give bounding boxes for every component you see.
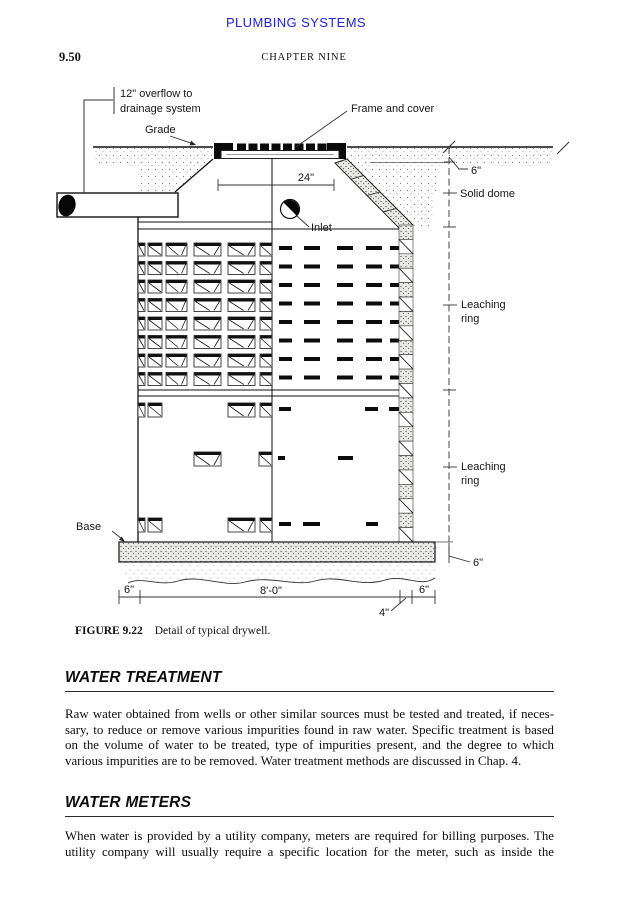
overflow-label-2: drainage system <box>120 103 201 115</box>
water-meters-paragraph: When water is provided by a utility comp… <box>65 829 554 860</box>
inlet-label: Inlet <box>311 222 332 234</box>
grade-label: Grade <box>145 124 176 136</box>
leaching-ring-blocks <box>138 225 413 542</box>
leaching-ring-2-label-a: Leaching <box>461 461 506 473</box>
frame-and-cover <box>214 143 346 159</box>
paragraph-line: various impurities are to be removed. Wa… <box>65 754 554 770</box>
base-slab <box>119 542 435 562</box>
right-dim-line <box>443 141 470 563</box>
figure-caption-text: Detail of typical drywell. <box>155 625 271 637</box>
solid-dome-label: Solid dome <box>460 188 515 200</box>
frame-cover-label: Frame and cover <box>351 103 434 115</box>
paragraph-line: on the volume of water to be treated, ty… <box>65 738 554 754</box>
paragraph-line: sary, to reduce or remove various impuri… <box>65 723 554 739</box>
frame-cover-leader <box>296 111 347 147</box>
section-heading-water-treatment: WATER TREATMENT <box>65 669 554 687</box>
dim-24-label: 24" <box>298 172 314 184</box>
leaching-ring-1-label-a: Leaching <box>461 299 506 311</box>
dim-6-top-label: 6" <box>471 165 481 177</box>
grade-leader <box>170 136 196 145</box>
leaching-ring-2-label-b: ring <box>461 475 479 487</box>
figure-caption: FIGURE 9.22Detail of typical drywell. <box>75 625 270 637</box>
leaching-ring-1-label-b: ring <box>461 313 479 325</box>
paragraph-line: Raw water obtained from wells or other s… <box>65 707 554 723</box>
drywell-shell <box>138 159 413 542</box>
paragraph-line: When water is provided by a utility comp… <box>65 829 554 845</box>
dim-4-label: 4" <box>379 607 389 619</box>
dim-24 <box>218 179 334 191</box>
book-page: PLUMBING SYSTEMS 9.50 CHAPTER NINE <box>0 0 618 900</box>
section-rule-1 <box>65 691 554 692</box>
inlet-pipe-symbol <box>281 200 310 228</box>
subsoil <box>119 562 435 584</box>
drywell-diagram: 12" overflow to drainage system Frame an… <box>0 0 618 660</box>
dim-6-base-label: 6" <box>473 557 483 569</box>
base-leader <box>112 531 125 542</box>
water-treatment-paragraph: Raw water obtained from wells or other s… <box>65 707 554 769</box>
dim-8ft-label: 8'-0" <box>260 585 282 597</box>
dim-6-br-label: 6" <box>419 584 429 596</box>
grade-end-slash <box>557 142 569 154</box>
paragraph-line: utility company will usually require a s… <box>65 845 554 861</box>
overflow-label-1: 12" overflow to <box>120 88 192 100</box>
section-heading-water-meters: WATER METERS <box>65 794 554 812</box>
dim-6-bl-label: 6" <box>124 584 134 596</box>
section-rule-2 <box>65 816 554 817</box>
base-label: Base <box>76 521 101 533</box>
figure-caption-label: FIGURE 9.22 <box>75 625 143 637</box>
overflow-pipe <box>56 193 178 218</box>
